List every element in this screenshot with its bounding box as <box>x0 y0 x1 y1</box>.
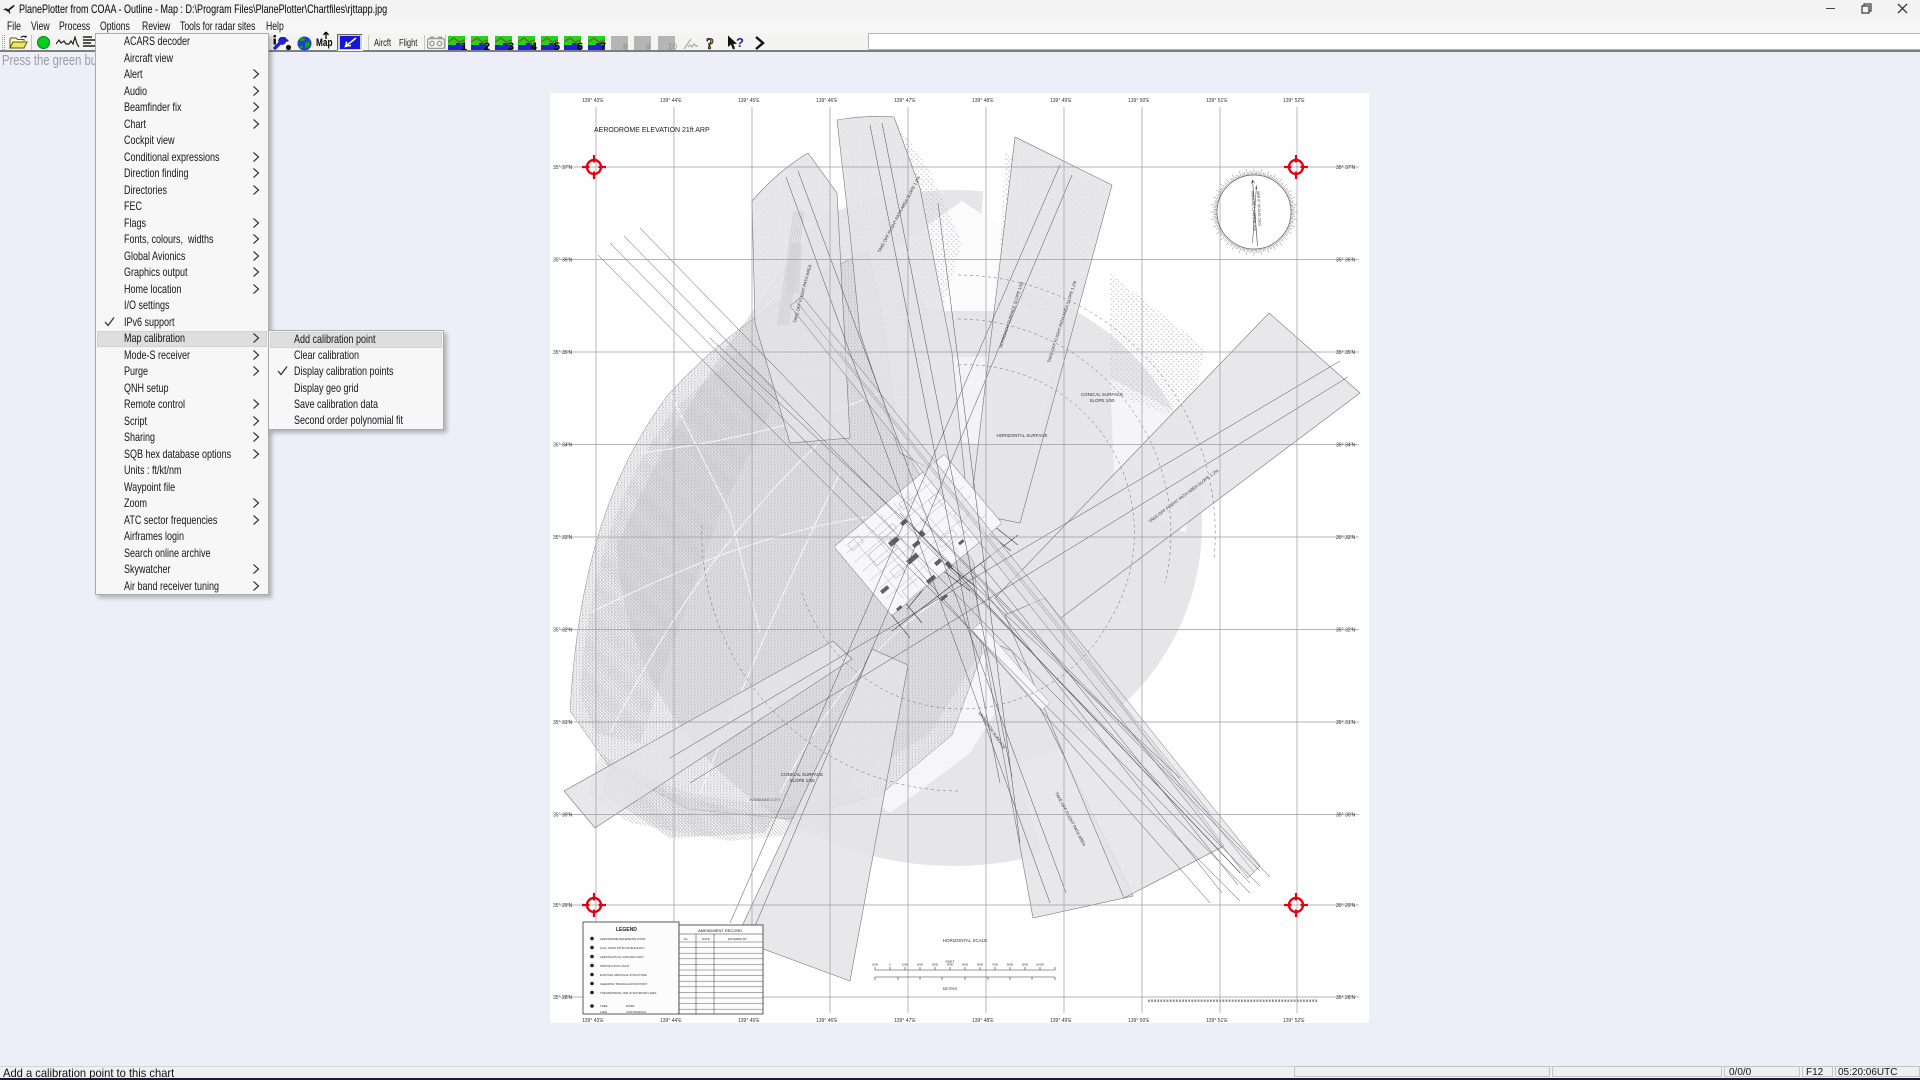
svg-text:RIVER: RIVER <box>626 1004 635 1008</box>
svg-text:139° 44'E: 139° 44'E <box>660 1018 682 1023</box>
svg-text:35° 31'N: 35° 31'N <box>553 720 572 726</box>
svg-text:35° 37'N: 35° 37'N <box>553 165 572 171</box>
svg-text:35° 34'N: 35° 34'N <box>1336 443 1355 449</box>
svg-text:139° 51'E: 139° 51'E <box>1206 1018 1228 1023</box>
svg-text:1: 1 <box>461 41 467 51</box>
svg-text:139° 52'E: 139° 52'E <box>1283 98 1305 104</box>
svg-text:139° 47'E: 139° 47'E <box>894 98 916 104</box>
svg-text:3000: 3000 <box>932 963 939 967</box>
svg-text:35° 36'N: 35° 36'N <box>553 258 572 264</box>
svg-text:SLOPE 1/50: SLOPE 1/50 <box>789 778 815 783</box>
svg-text:139° 48'E: 139° 48'E <box>972 98 994 104</box>
svg-text:2000: 2000 <box>917 963 924 967</box>
svg-text:9000: 9000 <box>1022 963 1029 967</box>
svg-text:139° 46'E: 139° 46'E <box>816 1018 838 1023</box>
svg-text:SHEARING TRIANGULATION: SHEARING TRIANGULATION POINT <box>600 982 647 986</box>
svg-text:EXISTING OBSTACLE STRUCTURE: EXISTING OBSTACLE STRUCTURE <box>600 973 647 977</box>
svg-text:35° 30'N: 35° 30'N <box>1336 813 1355 819</box>
svg-text:9: 9 <box>646 43 651 52</box>
svg-text:AERODROME ELEVATION 21ft ARP: AERODROME ELEVATION 21ft ARP <box>594 127 710 134</box>
svg-text:No: No <box>684 937 688 941</box>
svg-text:139° 46'E: 139° 46'E <box>816 98 838 104</box>
svg-text:35° 31'N: 35° 31'N <box>1336 720 1355 726</box>
svg-text:139° 49'E: 139° 49'E <box>1050 98 1072 104</box>
svg-text:ENTERED BY: ENTERED BY <box>728 937 747 941</box>
svg-text:KAWASAKI CITY: KAWASAKI CITY <box>750 797 781 802</box>
svg-text:?: ? <box>736 35 744 50</box>
svg-text:6: 6 <box>577 41 583 51</box>
svg-text:FULL TONW (MTB) ANTENNA ETC: FULL TONW (MTB) ANTENNA ETC <box>600 946 645 950</box>
svg-text:139° 45'E: 139° 45'E <box>738 98 760 104</box>
svg-text:8: 8 <box>623 43 628 52</box>
svg-text:2: 2 <box>484 41 490 51</box>
svg-text:35° 33'N: 35° 33'N <box>553 535 572 541</box>
svg-text:HORIZONTAL SCALE: HORIZONTAL SCALE <box>943 938 988 943</box>
svg-text:7000: 7000 <box>992 963 999 967</box>
svg-text:METRES: METRES <box>943 987 958 991</box>
svg-text:5: 5 <box>554 41 560 51</box>
svg-text:35° 30'N: 35° 30'N <box>553 813 572 819</box>
svg-text:139° 45'E: 139° 45'E <box>738 1018 760 1023</box>
svg-text:35° 36'N: 35° 36'N <box>1336 258 1355 264</box>
svg-text:CONICAL SURFACE: CONICAL SURFACE <box>781 772 823 777</box>
svg-text:8000: 8000 <box>1007 963 1014 967</box>
svg-text:35° 28'N: 35° 28'N <box>553 995 572 1001</box>
svg-text:35° 33'N: 35° 33'N <box>1336 535 1355 541</box>
svg-text:35° 34'N: 35° 34'N <box>553 443 572 449</box>
svg-text:SLOPE 1/50: SLOPE 1/50 <box>1089 398 1115 403</box>
svg-text:139° 47'E: 139° 47'E <box>894 1018 916 1023</box>
svg-text:OBSTRUCTION LIGHT: OBSTRUCTION LIGHT <box>600 964 630 968</box>
svg-text:35° 32'N: 35° 32'N <box>1336 628 1355 634</box>
svg-text:35° 35'N: 35° 35'N <box>1336 350 1355 356</box>
svg-text:35° 35'N: 35° 35'N <box>553 350 572 356</box>
svg-text:139° 43'E: 139° 43'E <box>582 1018 604 1023</box>
svg-text:35° 37'N: 35° 37'N <box>1336 165 1355 171</box>
svg-text:LEGEND: LEGEND <box>616 927 637 933</box>
svg-text:5000: 5000 <box>962 963 969 967</box>
svg-text:139° 52'E: 139° 52'E <box>1283 1018 1305 1023</box>
svg-text:AERODROME REFERENCE POINT: AERODROME REFERENCE POINT <box>600 937 646 941</box>
svg-text:DATE: DATE <box>702 937 710 941</box>
svg-text:1000: 1000 <box>872 963 879 967</box>
svg-text:LAKE: LAKE <box>600 1010 607 1014</box>
svg-text:10: 10 <box>668 43 677 52</box>
svg-text:139° 43'E: 139° 43'E <box>582 98 604 104</box>
svg-text:4: 4 <box>531 41 538 51</box>
svg-text:35° 29'N: 35° 29'N <box>553 903 572 909</box>
svg-text:?: ? <box>706 36 714 52</box>
svg-text:139° 44'E: 139° 44'E <box>660 98 682 104</box>
svg-text:35° 28'N: 35° 28'N <box>1336 995 1355 1001</box>
svg-text:139° 50'E: 139° 50'E <box>1128 98 1150 104</box>
svg-text:35° 29'N: 35° 29'N <box>1336 903 1355 909</box>
svg-text:AERONAUTICAL GROUND LIGHT: AERONAUTICAL GROUND LIGHT <box>600 955 644 959</box>
svg-text:7: 7 <box>600 41 606 51</box>
svg-text:10000: 10000 <box>1036 963 1044 967</box>
svg-text:4000: 4000 <box>947 963 954 967</box>
svg-text:139° 49'E: 139° 49'E <box>1050 1018 1072 1023</box>
svg-text:139° 51'E: 139° 51'E <box>1206 98 1228 104</box>
svg-text:TREE: TREE <box>600 1004 608 1008</box>
svg-text:1000: 1000 <box>902 963 909 967</box>
svg-text:139° 50'E: 139° 50'E <box>1128 1018 1150 1023</box>
svg-text:AMENDMENT RECORD: AMENDMENT RECORD <box>698 928 742 933</box>
svg-text:35° 32'N: 35° 32'N <box>553 628 572 634</box>
svg-text:3: 3 <box>508 41 514 51</box>
svg-text:6000: 6000 <box>977 963 984 967</box>
svg-text:CONTOURS(m): CONTOURS(m) <box>626 1010 646 1014</box>
svg-text:CONICAL SURFACE: CONICAL SURFACE <box>1081 392 1123 397</box>
svg-text:HORIZONTAL SURFACE: HORIZONTAL SURFACE <box>996 433 1047 438</box>
svg-text:TRANSMISSION LINE W/ EXTERIOR: TRANSMISSION LINE W/ EXTERIOR LINES <box>600 991 657 995</box>
svg-text:139° 48'E: 139° 48'E <box>972 1018 994 1023</box>
